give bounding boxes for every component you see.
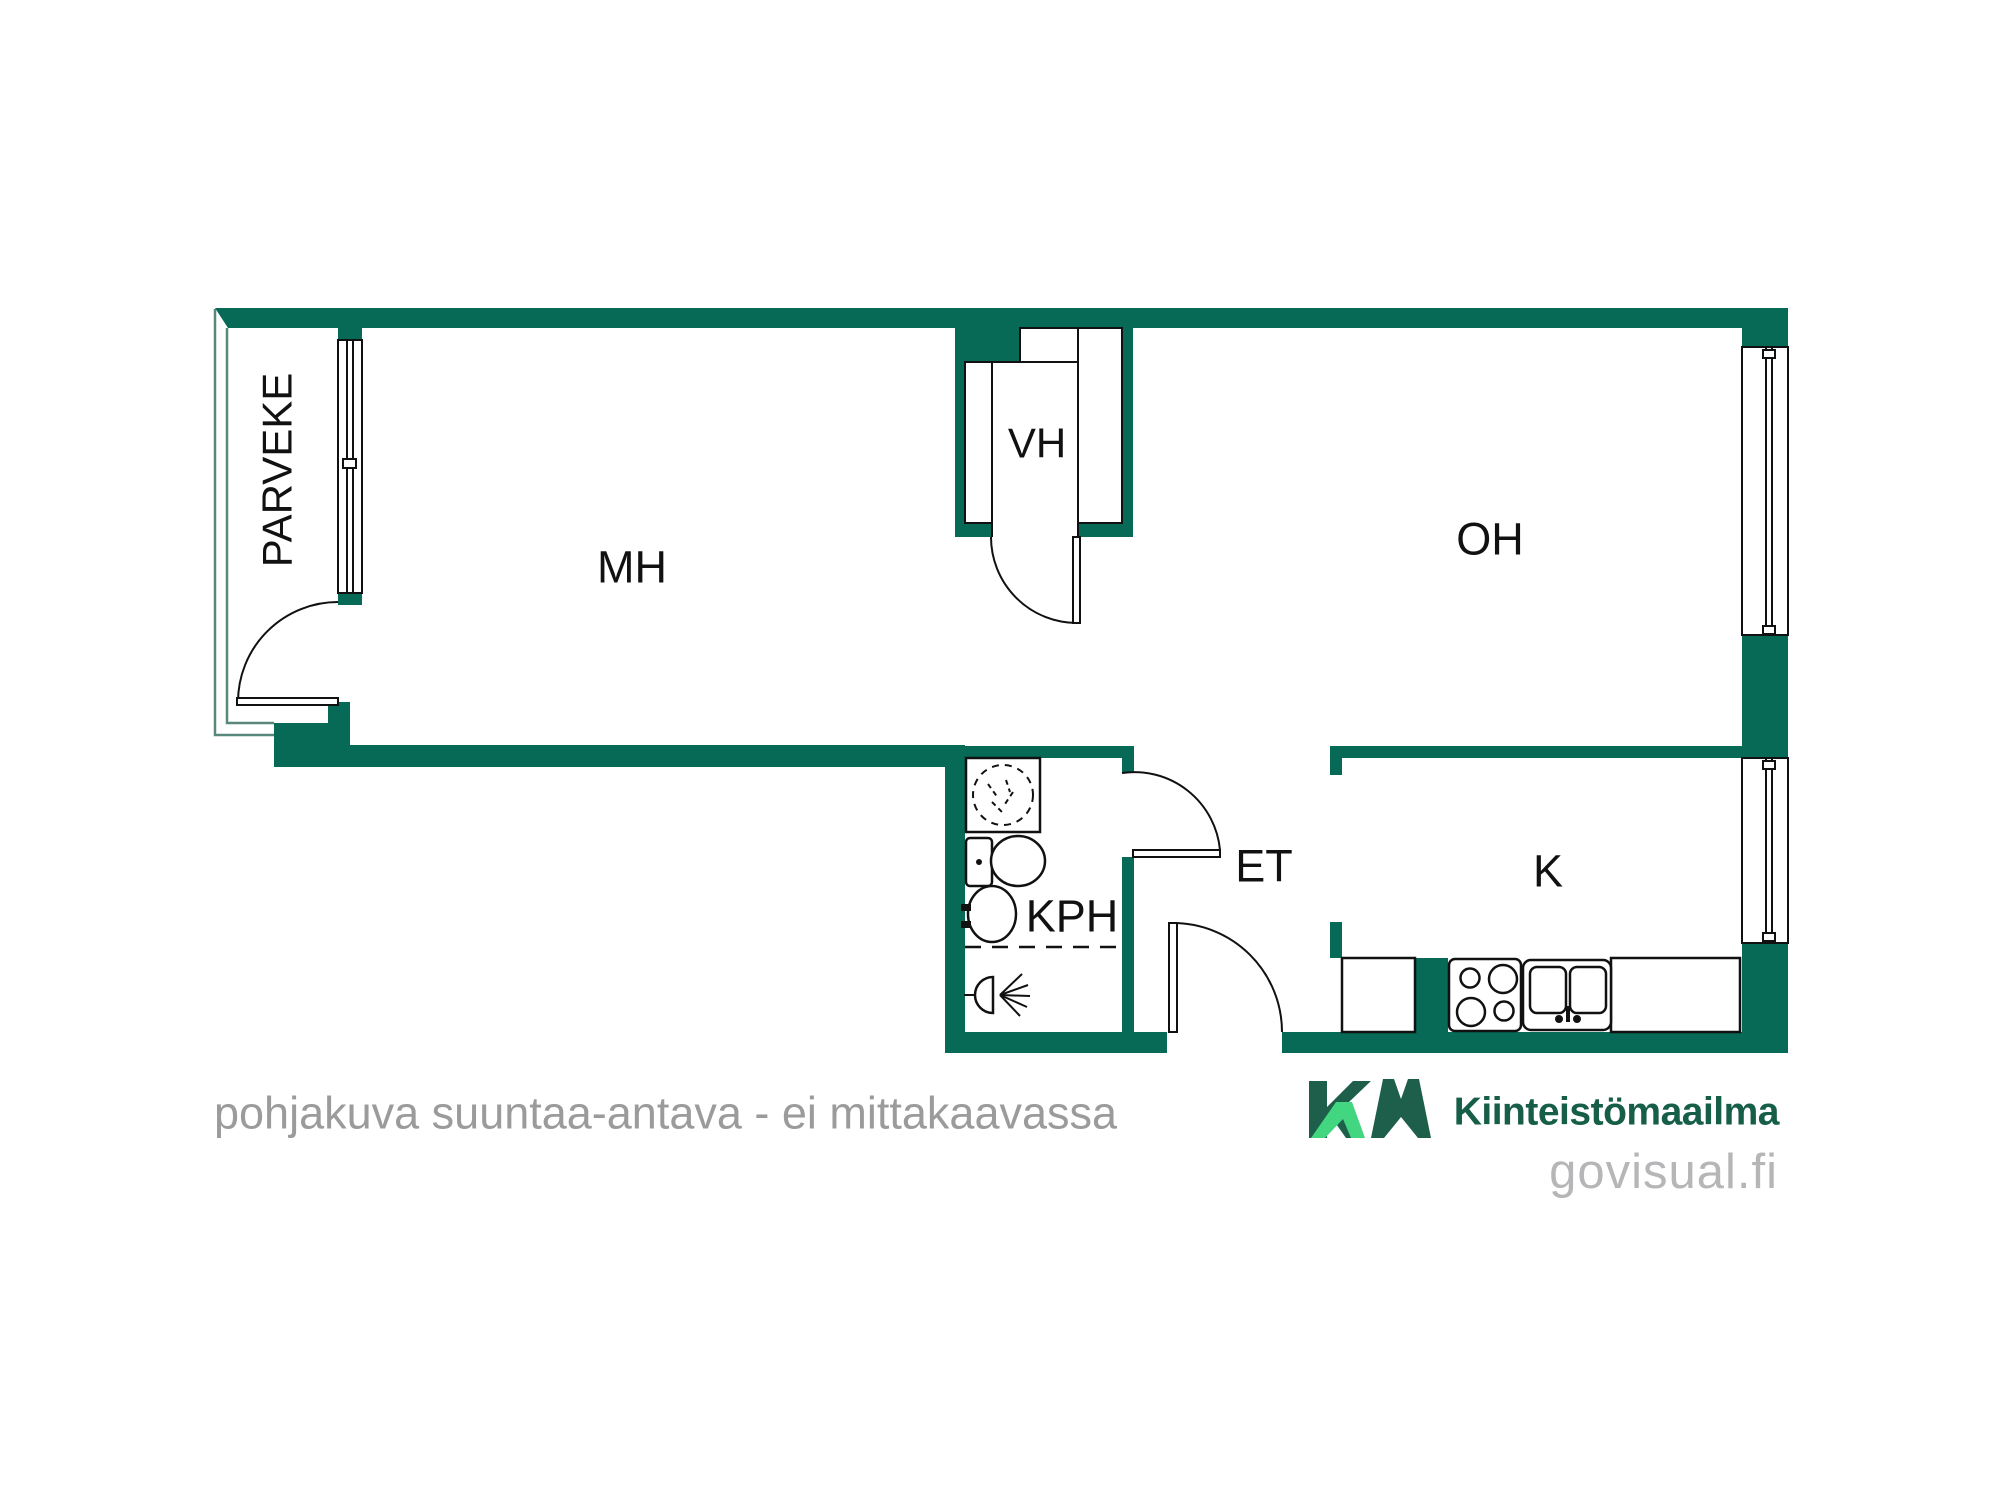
room-label-parveke: PARVEKE [254,373,301,568]
room-label-mh: MH [597,542,667,593]
living-room-window [1742,347,1788,635]
closet-door-swing [991,537,1077,623]
balcony-door [237,602,338,705]
room-label-et: ET [1235,841,1293,892]
closet-door-leaf [1073,537,1080,623]
balcony-window [338,340,362,593]
room-labels: PARVEKE MH VH OH KPH ET K [254,373,1564,942]
washing-machine-body [966,758,1040,832]
living-kitchen-wall-stub [1330,758,1342,775]
kitchen-window-sash-tick-bottom [1763,933,1775,941]
sink-icon [961,886,1016,942]
entry-door-leaf [1169,923,1177,1032]
toilet-button [976,859,982,865]
shower-ray-5 [1000,995,1020,1016]
km-logo-m [1371,1079,1431,1138]
toilet-bowl [991,836,1045,886]
counter-segment-left [1342,958,1415,1032]
kitchen-sink-icon [1523,960,1611,1030]
closet-right-compartment [1078,328,1122,523]
bottom-wall-left [945,1032,1167,1053]
kitchen-sink-faucet-stem [1566,1006,1570,1022]
sink-basin [968,886,1016,942]
km-logo-mark [1309,1079,1431,1138]
balcony-window-cap-bottom [338,593,362,605]
closet-door [991,537,1080,623]
room-label-vh: VH [1008,420,1066,467]
room-label-k: K [1533,846,1563,897]
bedroom-south-wall [350,745,965,767]
room-label-oh: OH [1456,514,1524,565]
counter-pillar [1415,958,1448,1032]
hall-kitchen-stub [1330,922,1342,958]
floor-plan-page: PARVEKE MH VH OH KPH ET K pohjakuva suun… [0,0,2000,1500]
right-wall-mid-block [1742,635,1788,758]
shower-ray-4 [1000,995,1027,1007]
balcony-window-cap-top [338,328,362,340]
bottom-wall-right [1282,1032,1788,1053]
bathroom-top-wall [965,746,1134,758]
kitchen-sink-basin-left [1530,967,1566,1013]
bathroom-door [1122,772,1220,857]
toilet-icon [966,836,1045,886]
watermark-text: govisual.fi [1549,1145,1778,1199]
bathroom-left-wall [945,767,965,1032]
bathroom-door-swing [1122,772,1220,850]
top-wall [215,308,1788,328]
kitchen-counter [1342,958,1740,1032]
room-label-kph: KPH [1026,891,1119,942]
balcony-window-sash-tick [343,459,356,468]
bathroom-right-wall-top [1122,746,1134,773]
sink-tap-2 [961,921,971,928]
floor-plan-drawing: PARVEKE MH VH OH KPH ET K pohjakuva suun… [0,0,2000,1500]
kitchen-window-sash-tick-top [1763,761,1775,769]
brand-logo: Kiinteistömaailma govisual.fi [1309,1079,1780,1199]
balcony-door-swing [238,602,338,702]
kitchen-sink-faucet-dot-right [1573,1015,1581,1023]
counter-segment-right [1611,958,1740,1032]
washing-machine-icon [966,758,1040,832]
living-kitchen-wall [1330,746,1742,758]
kitchen-sink-basin-right [1570,967,1606,1013]
shower-ray-3 [1000,995,1030,996]
right-wall-top-block [1742,328,1788,347]
closet-top-recess [1020,328,1078,362]
balcony-step-block [274,723,350,767]
balcony-door-leaf [237,698,338,705]
bathroom-door-leaf [1133,850,1220,857]
shower-icon [964,974,1030,1016]
shower-head [975,977,993,1013]
living-room-window-sash-tick-bottom [1763,626,1775,634]
brand-name-text: Kiinteistömaailma [1454,1091,1780,1134]
stove-icon [1449,959,1521,1031]
kitchen-sink-faucet-dot-left [1555,1015,1563,1023]
bathroom-fixtures [961,758,1122,1016]
sink-tap-1 [961,904,971,911]
bathroom-right-wall-bottom [1122,857,1134,1032]
entry-door [1169,923,1282,1032]
entry-door-swing [1173,923,1282,1032]
disclaimer-text: pohjakuva suuntaa-antava - ei mittakaava… [214,1088,1118,1139]
living-room-window-sash-tick-top [1763,350,1775,358]
kitchen-window [1742,758,1788,943]
closet-left-column [965,362,992,523]
